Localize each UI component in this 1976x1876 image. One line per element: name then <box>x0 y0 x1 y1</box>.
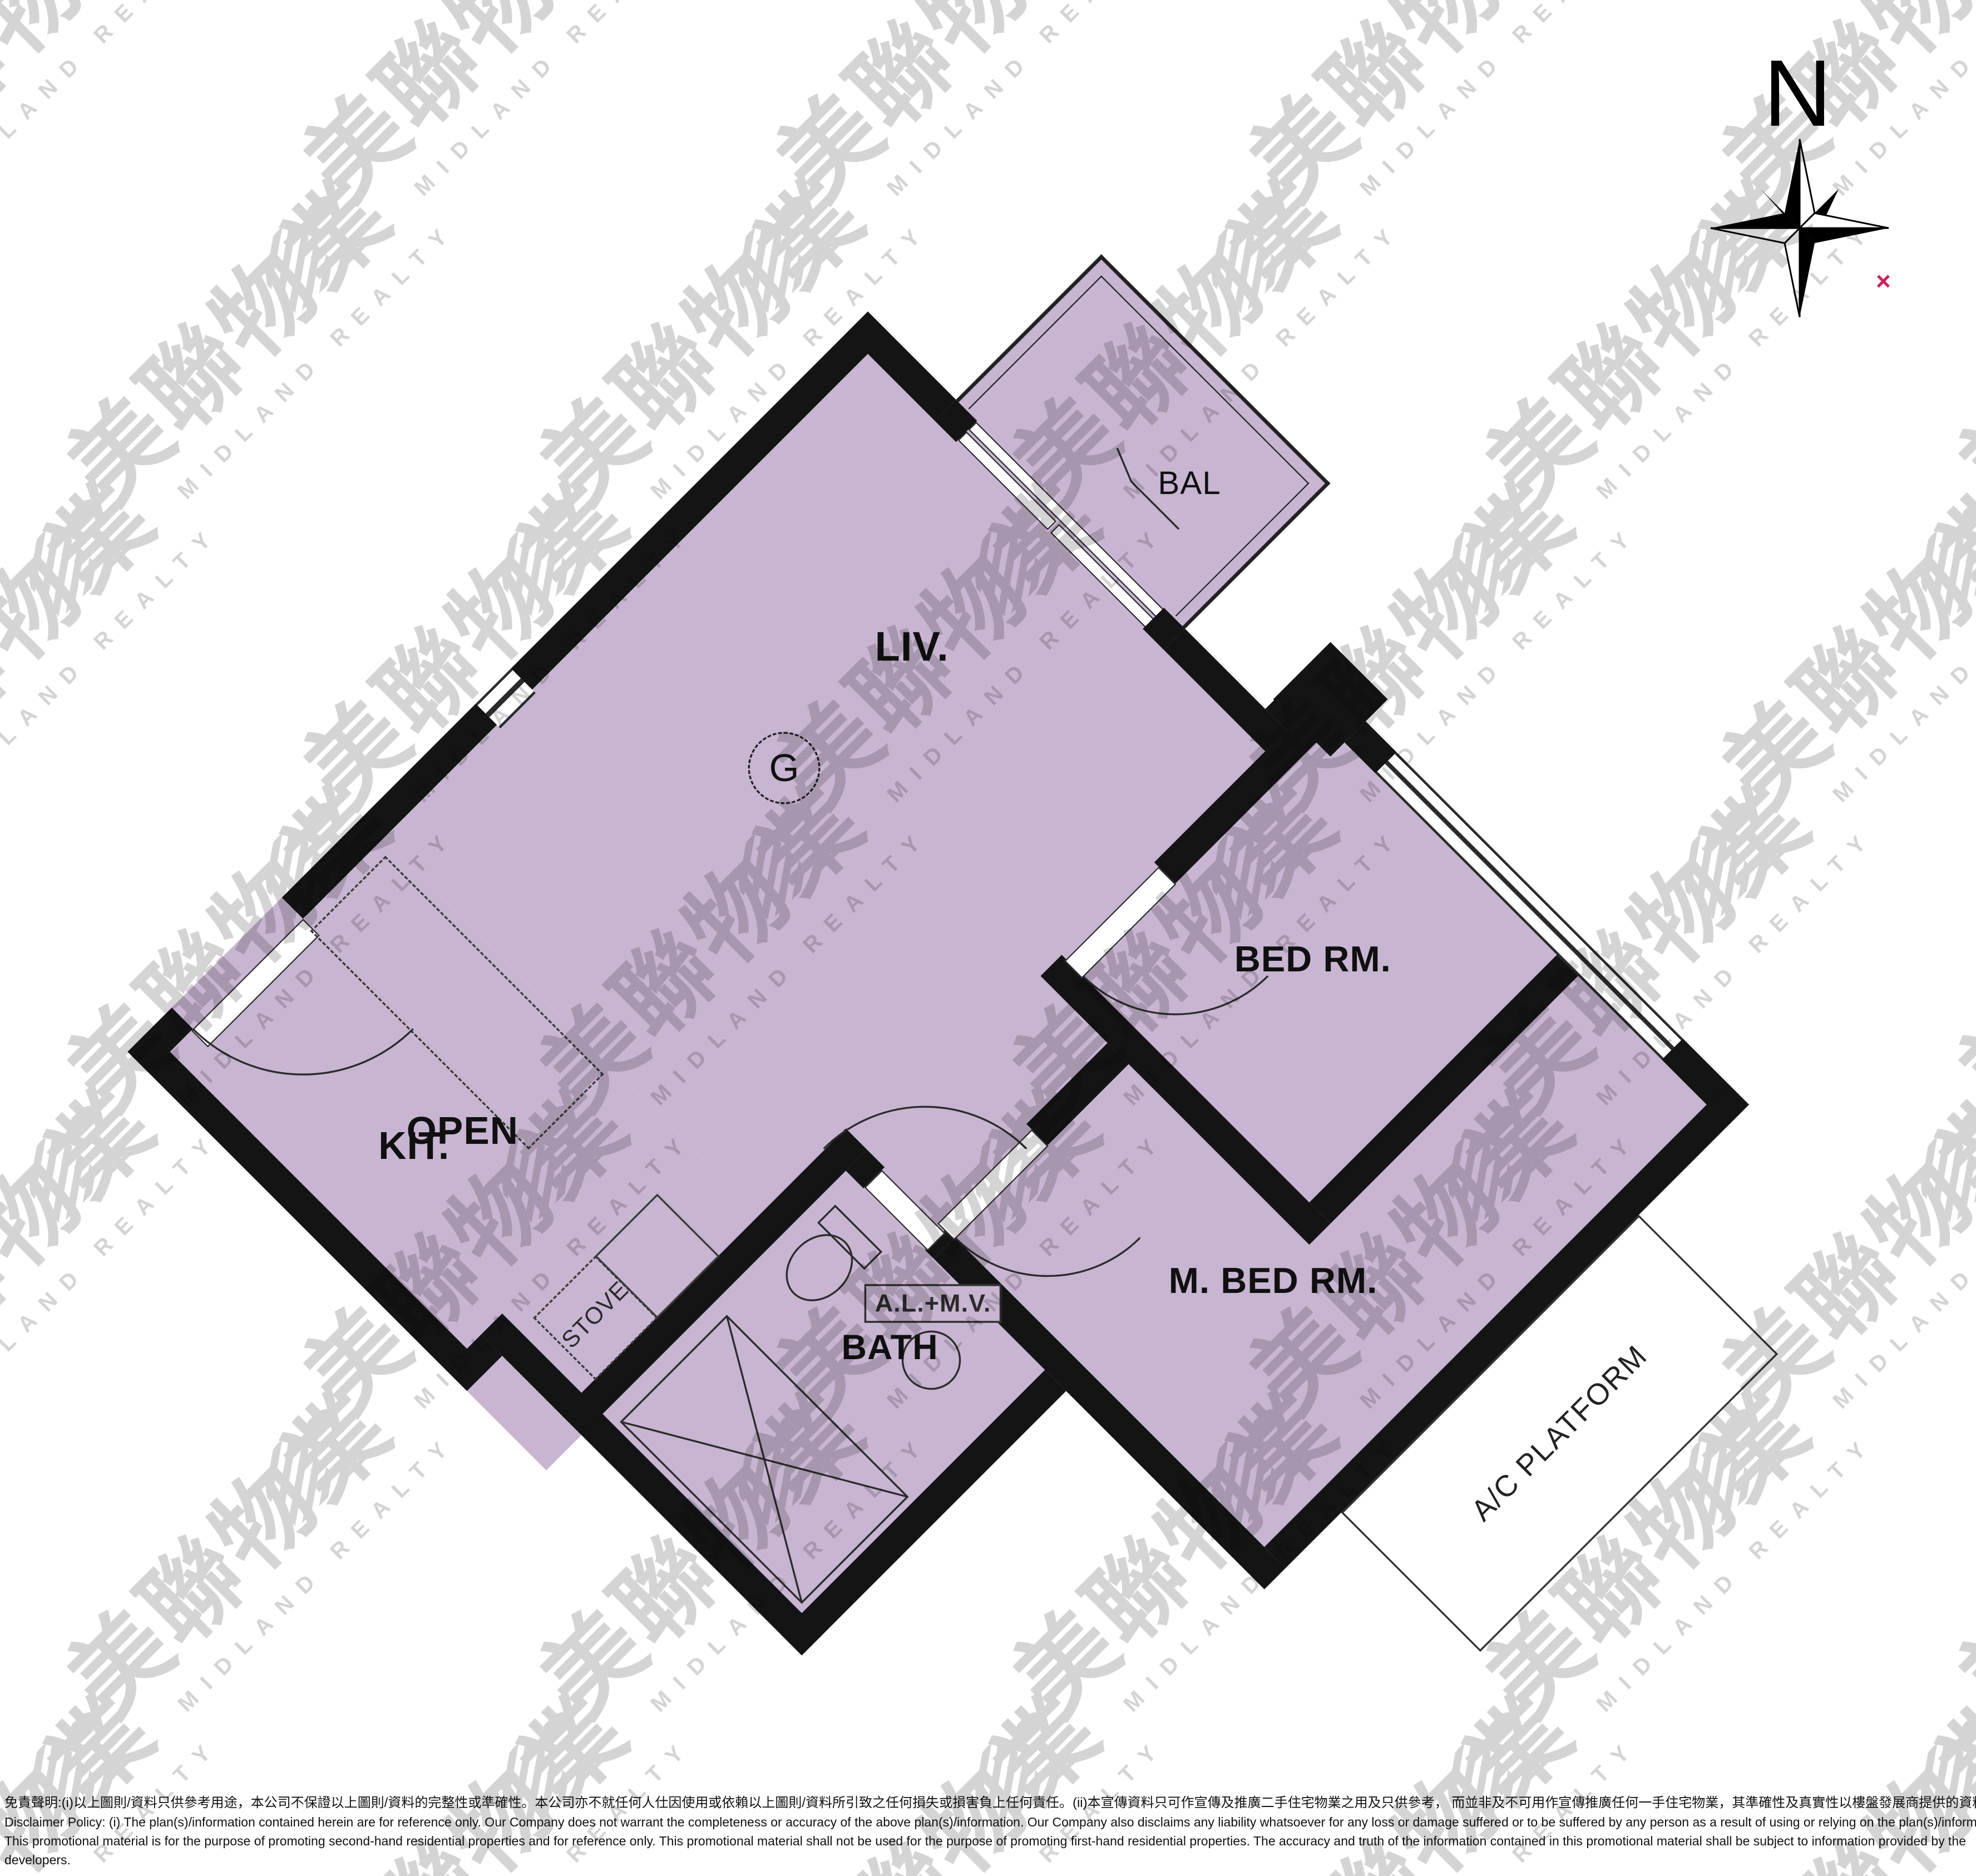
plan-linework <box>0 0 1976 1876</box>
room-label-bal: BAL <box>1158 465 1221 502</box>
room-label-bath: BATH <box>842 1327 938 1367</box>
disclaimer-english-line1: Disclaimer Policy: (i) The plan(s)/infor… <box>4 1813 1976 1831</box>
watermark-chinese-text: 美聯物業 <box>0 0 182 225</box>
bath-door-swing <box>824 1048 1026 1250</box>
gas-point-symbol: G <box>748 732 821 804</box>
disclaimer-block: 免責聲明:(i)以上圖則/資料只供參考用途，本公司不保證以上圖則/資料的完整性或… <box>4 1794 1976 1869</box>
disclaimer-english-line2: This promotional material is for the pur… <box>4 1831 1976 1850</box>
disclaimer-chinese: 免責聲明:(i)以上圖則/資料只供參考用途，本公司不保證以上圖則/資料的完整性或… <box>4 1794 1976 1813</box>
room-label-openkit-line2: KIT. <box>378 1124 449 1168</box>
watermark-chinese-text: 美聯物業 <box>1213 0 1600 225</box>
watermark-english-text: MIDLAND REALTY <box>1347 0 1652 209</box>
watermark-tile: 美聯物業MIDLAND REALTY <box>0 0 213 324</box>
toilet-tank <box>818 1206 881 1268</box>
entrance-door-swing <box>193 919 413 1139</box>
room-label-bed: BED RM. <box>1234 939 1391 980</box>
watermark-english-text: MIDLAND REALTY <box>0 0 233 209</box>
floorplan-page: A/C PLATFORM <box>0 0 1976 1876</box>
disclaimer-english-line3: developers. <box>4 1850 1976 1869</box>
watermark-chinese-text: 美聯物業 <box>267 0 655 225</box>
room-label-liv: LIV. <box>875 623 949 670</box>
watermark-english-text: MIDLAND REALTY <box>1820 511 1976 815</box>
almv-label-box: A.L.+M.V. <box>864 1290 1002 1317</box>
toilet <box>774 1222 866 1314</box>
room-label-mbed: M. BED RM. <box>1169 1260 1378 1302</box>
almv-label: A.L.+M.V. <box>864 1284 1002 1322</box>
compass-star-icon <box>1697 128 1930 328</box>
compass-rose: N <box>1697 39 1930 339</box>
watermark-chinese-text: 美聯物業 <box>1922 1354 1976 1742</box>
red-cross-marker: × <box>1876 266 1891 296</box>
